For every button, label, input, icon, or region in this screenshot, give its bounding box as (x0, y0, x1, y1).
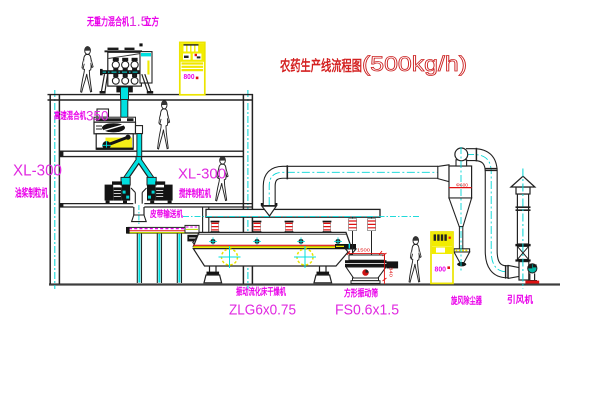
svg-text:XL-300: XL-300 (13, 163, 62, 180)
svg-text:(500kg/h): (500kg/h) (362, 53, 467, 76)
svg-text:350: 350 (86, 109, 109, 124)
svg-text:立方: 立方 (144, 15, 159, 28)
svg-text:ZLG6x0.75: ZLG6x0.75 (229, 302, 296, 319)
svg-text:方形振动筛: 方形振动筛 (344, 288, 378, 300)
svg-text:皮带输送机: 皮带输送机 (149, 208, 183, 219)
svg-text:高速混合机: 高速混合机 (54, 110, 86, 122)
svg-text:引风机: 引风机 (507, 294, 533, 306)
svg-text:无重力混合机: 无重力混合机 (86, 15, 129, 28)
svg-text:340: 340 (389, 267, 394, 278)
svg-text:FS0.6x1.5: FS0.6x1.5 (335, 302, 399, 319)
svg-text:旋风除尘器: 旋风除尘器 (450, 295, 482, 307)
svg-text:XL-300: XL-300 (178, 167, 226, 183)
svg-text:1500: 1500 (357, 248, 371, 253)
svg-text:农药生产线流程图: 农药生产线流程图 (279, 57, 362, 75)
svg-text:Φ600: Φ600 (456, 182, 469, 187)
svg-text:振动流化床干燥机: 振动流化床干燥机 (236, 286, 286, 298)
svg-text:搅拌制粒机: 搅拌制粒机 (179, 187, 211, 200)
svg-text:油桨制粒机: 油桨制粒机 (15, 186, 48, 200)
svg-text:800: 800 (435, 265, 447, 274)
svg-text:800: 800 (184, 74, 195, 81)
